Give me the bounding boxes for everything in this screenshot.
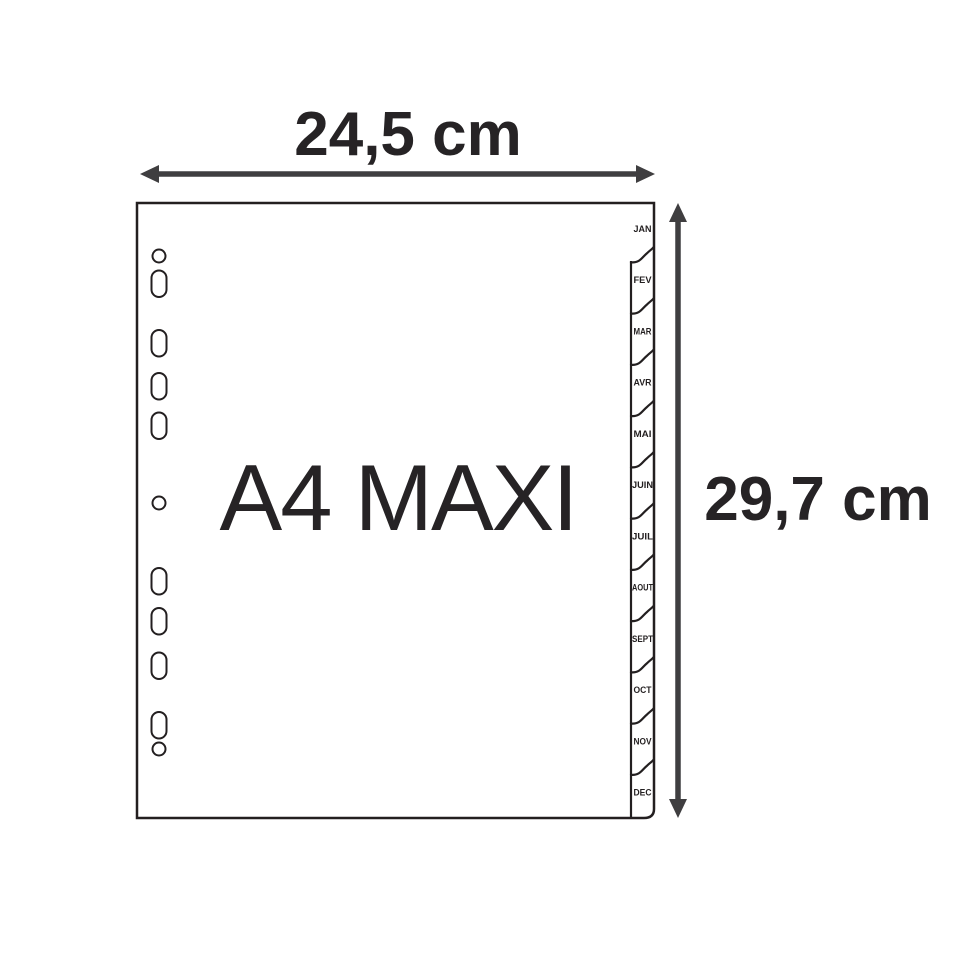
tab-label-nov: NOV bbox=[634, 736, 652, 746]
height-dimension-label: 29,7 cm bbox=[704, 465, 932, 534]
height-arrow-top-head bbox=[669, 203, 687, 222]
tab-label-jan: JAN bbox=[634, 224, 652, 234]
width-arrow-right-head bbox=[636, 165, 655, 183]
punch-hole-round bbox=[153, 250, 166, 263]
tab-label-dec: DEC bbox=[634, 788, 652, 798]
punch-hole-oblong bbox=[152, 568, 167, 595]
punch-hole-oblong bbox=[152, 653, 167, 680]
height-dimension: 29,7 cm bbox=[669, 203, 932, 818]
tab-label-juin: JUIN bbox=[632, 480, 653, 490]
tab-label-mar: MAR bbox=[634, 326, 652, 336]
tab-label-fev: FEV bbox=[634, 275, 652, 285]
product-diagram: JANFEVMARAVRMAIJUINJUILAOUTSEPTOCTNOVDEC… bbox=[0, 0, 962, 962]
punch-hole-oblong bbox=[152, 608, 167, 635]
tab-label-oct: OCT bbox=[634, 685, 652, 695]
punch-hole-oblong bbox=[152, 330, 167, 357]
tab-label-juil: JUIL bbox=[632, 531, 654, 541]
sheet-title: A4 MAXI bbox=[220, 445, 577, 550]
punch-hole-oblong bbox=[152, 712, 167, 739]
punch-hole-oblong bbox=[152, 373, 167, 400]
tab-label-avr: AVR bbox=[634, 378, 652, 388]
punch-hole-round bbox=[153, 497, 166, 510]
punch-hole-round bbox=[153, 743, 166, 756]
tab-label-sept: SEPT bbox=[632, 634, 653, 644]
tab-label-aout: AOUT bbox=[632, 583, 653, 593]
punch-hole-oblong bbox=[152, 413, 167, 440]
punch-hole-oblong bbox=[152, 271, 167, 298]
divider-illustration: JANFEVMARAVRMAIJUINJUILAOUTSEPTOCTNOVDEC… bbox=[0, 0, 962, 962]
width-arrow-left-head bbox=[140, 165, 159, 183]
height-arrow-bottom-head bbox=[669, 799, 687, 818]
tab-label-mai: MAI bbox=[634, 429, 652, 439]
width-dimension: 24,5 cm bbox=[140, 100, 655, 183]
width-dimension-label: 24,5 cm bbox=[294, 100, 522, 169]
